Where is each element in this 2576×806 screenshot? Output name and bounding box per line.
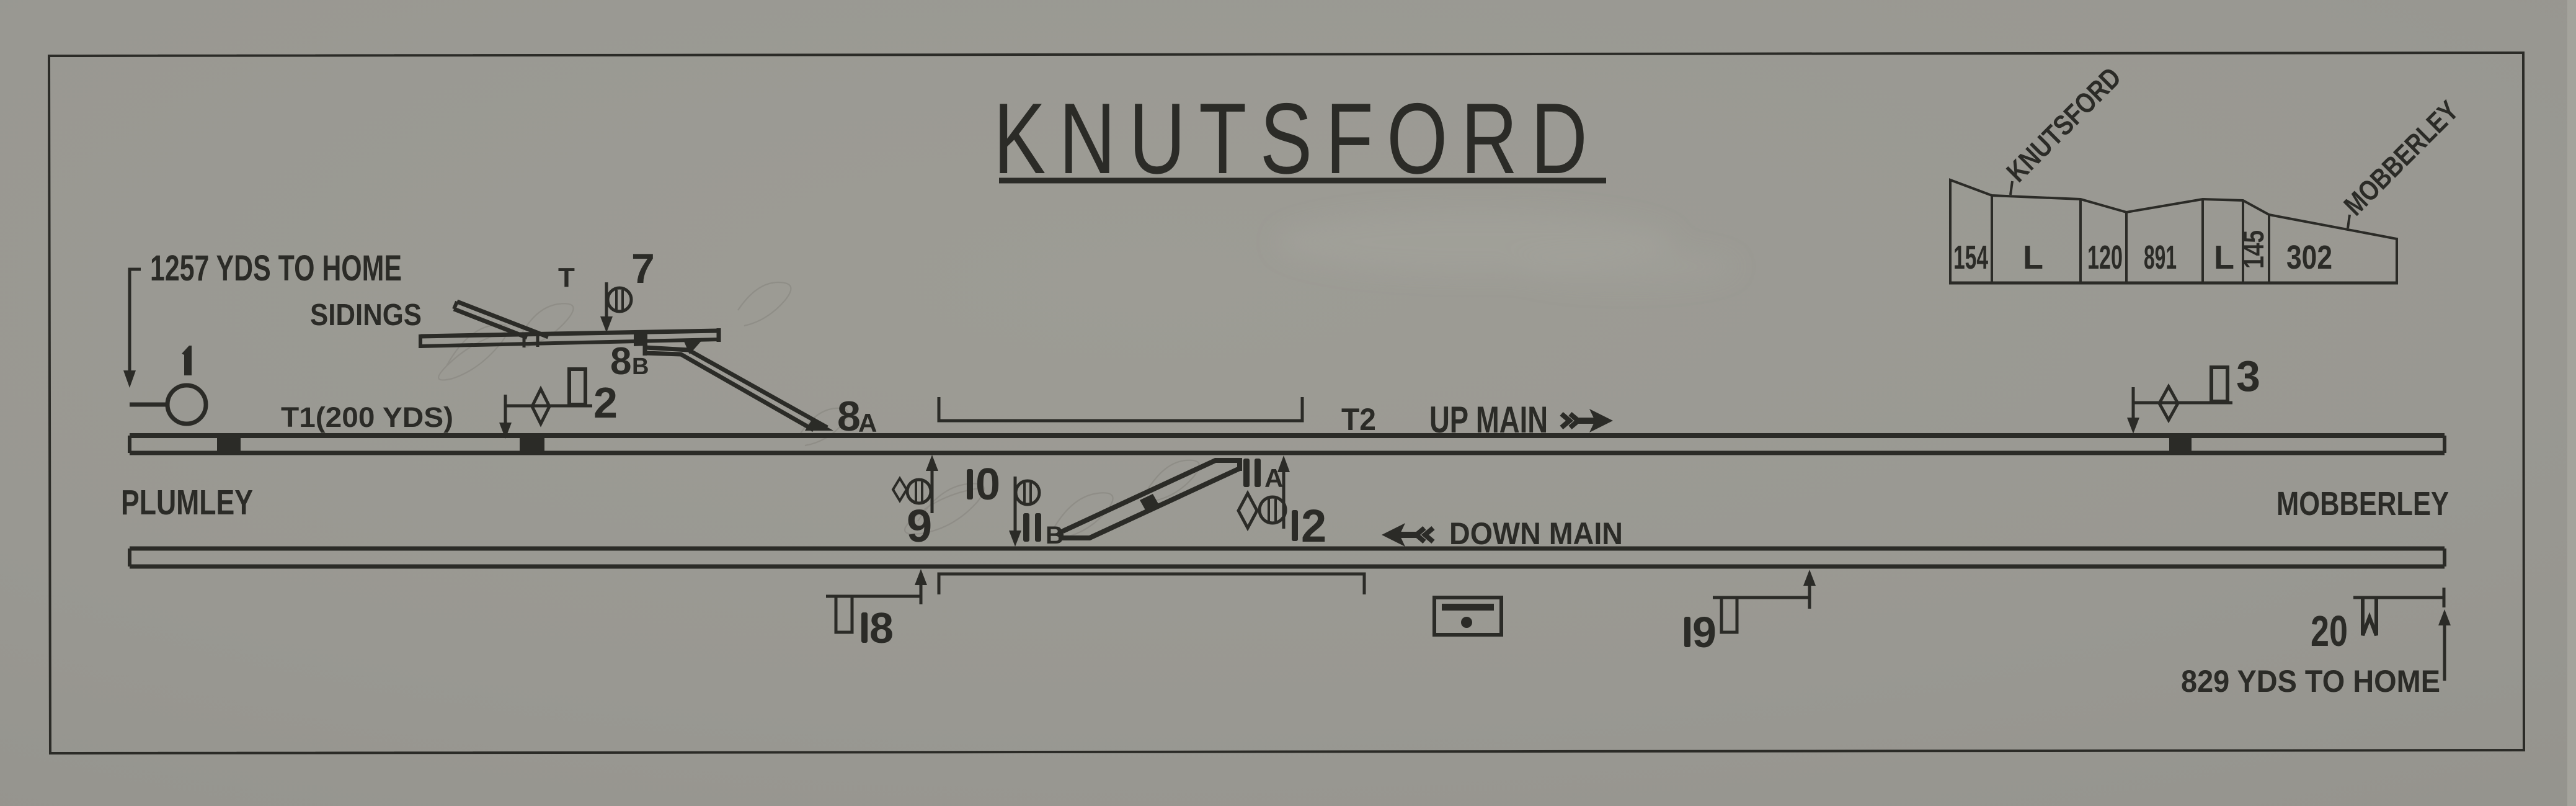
svg-text:T: T — [558, 262, 575, 293]
svg-text:8: 8 — [610, 340, 631, 383]
svg-text:1257 YDS TO HOME: 1257 YDS TO HOME — [150, 248, 402, 289]
svg-text:154: 154 — [1953, 239, 1988, 276]
svg-text:145: 145 — [2237, 230, 2270, 269]
svg-text:DOWN MAIN: DOWN MAIN — [1449, 516, 1623, 551]
svg-text:KNUTSFORD: KNUTSFORD — [993, 82, 1599, 195]
svg-text:L: L — [2214, 239, 2234, 276]
svg-text:9: 9 — [907, 500, 932, 552]
svg-text:9: 9 — [1692, 608, 1717, 656]
svg-text:7: 7 — [631, 245, 655, 292]
svg-text:302: 302 — [2286, 239, 2332, 276]
svg-text:891: 891 — [2144, 239, 2177, 276]
svg-text:MOBBERLEY: MOBBERLEY — [2276, 485, 2449, 522]
svg-text:B: B — [632, 354, 649, 380]
svg-text:B: B — [1046, 522, 1064, 549]
svg-text:8: 8 — [869, 604, 894, 652]
svg-text:2: 2 — [1301, 500, 1326, 552]
svg-text:T2: T2 — [1341, 402, 1376, 437]
svg-text:120: 120 — [2087, 239, 2123, 276]
svg-text:PLUMLEY: PLUMLEY — [121, 483, 253, 522]
svg-text:20: 20 — [2311, 607, 2348, 655]
svg-text:SIDINGS: SIDINGS — [310, 298, 422, 332]
svg-text:T1(200 YDS): T1(200 YDS) — [281, 401, 453, 433]
svg-text:0: 0 — [975, 460, 1000, 509]
svg-text:UP MAIN: UP MAIN — [1429, 399, 1548, 441]
svg-text:A: A — [858, 408, 877, 437]
svg-text:2: 2 — [593, 378, 618, 427]
svg-text:8: 8 — [837, 393, 861, 440]
svg-text:3: 3 — [2236, 352, 2260, 400]
svg-text:829 YDS TO HOME: 829 YDS TO HOME — [2181, 664, 2440, 699]
svg-text:L: L — [2023, 239, 2043, 276]
